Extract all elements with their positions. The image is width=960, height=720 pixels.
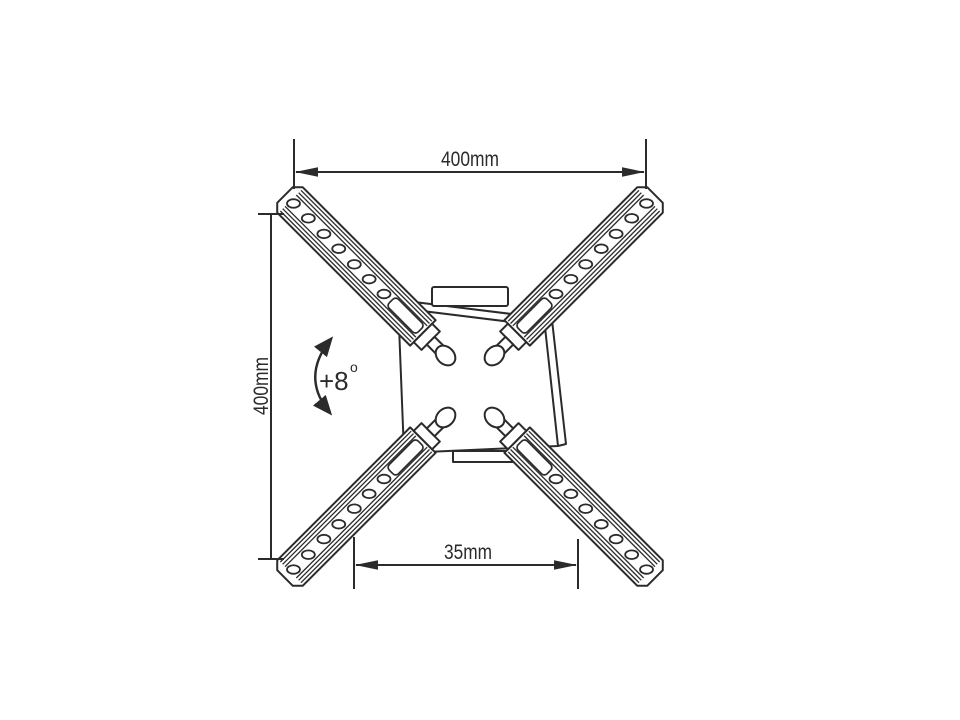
arm-lower-right [474, 397, 668, 591]
bracket-diagram: 400mm 400mm 35mm +8 o [0, 0, 960, 720]
tilt-angle-annotation: +8 o [315, 339, 358, 413]
arm-lower-left [272, 397, 466, 591]
page-background: 400mm 400mm 35mm +8 o [0, 0, 960, 720]
dimension-left-height: 400mm [250, 214, 284, 559]
dimension-label-bottom-spacing: 35mm [444, 541, 492, 564]
dimension-label-left-height: 400mm [250, 357, 273, 415]
dimension-label-top-width: 400mm [441, 148, 499, 171]
tilt-angle-label: +8 [319, 366, 349, 396]
dimension-bottom-spacing: 35mm [354, 537, 578, 589]
tilt-angle-degree-symbol: o [350, 359, 358, 375]
plate-top-tab [432, 287, 508, 306]
arm-upper-left [272, 182, 466, 376]
dimension-top-width: 400mm [294, 139, 646, 189]
arm-upper-right [474, 182, 668, 376]
